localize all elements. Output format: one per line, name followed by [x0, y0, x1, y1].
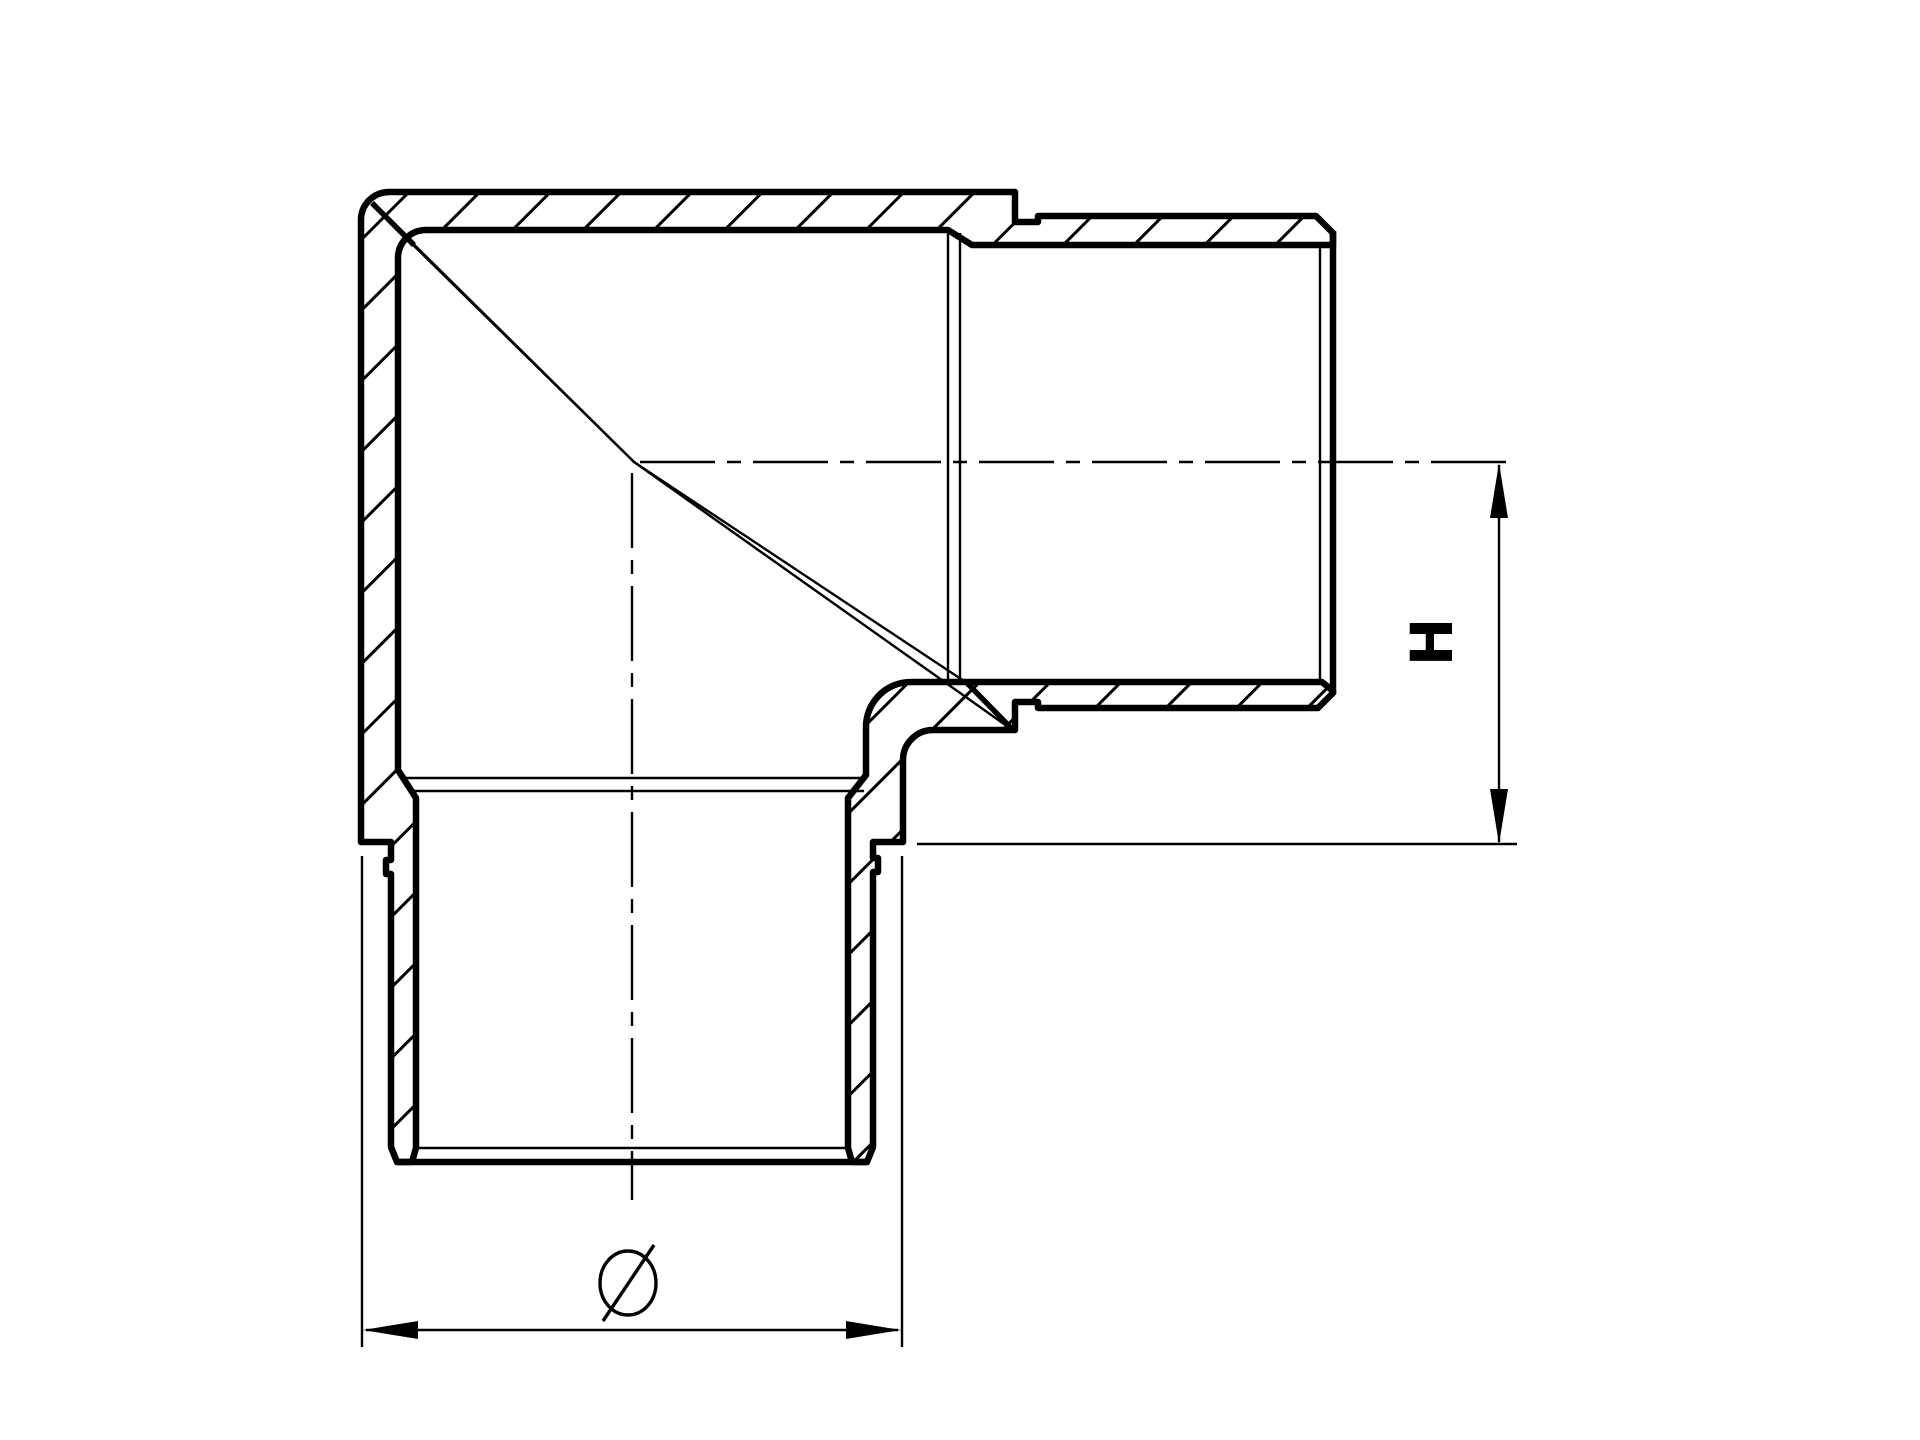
- height-label: H: [1398, 618, 1466, 667]
- drawing-canvas: Ø: [0, 0, 1920, 1440]
- elbow-fitting-technical-drawing: H: [0, 0, 1920, 1440]
